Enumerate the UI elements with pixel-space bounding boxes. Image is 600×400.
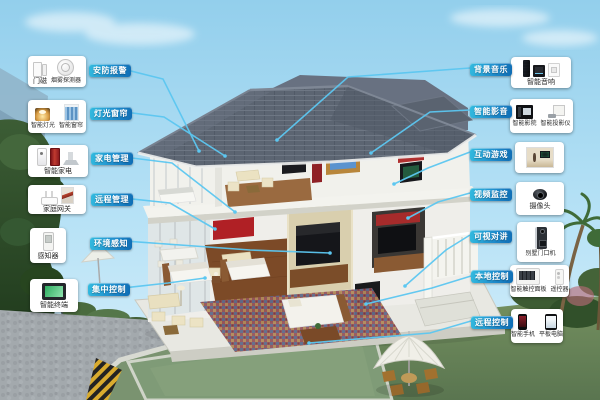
device-box-panel: 智能触控面板 遥控器 xyxy=(510,265,569,297)
device-box-lighting: 智能灯光 智能窗帘 xyxy=(28,100,86,133)
tablet-icon xyxy=(545,314,557,330)
device-label: 智能家电 xyxy=(44,167,72,175)
label-remote-control: 远程控制 xyxy=(471,316,513,329)
label-video-intercom: 可视对讲 xyxy=(470,230,512,243)
projector-icon xyxy=(548,105,564,119)
device-box-terminal: 智能终端 xyxy=(30,279,78,312)
device-box-gateway: 家庭网关 xyxy=(28,185,86,214)
label-local-control: 本地控制 xyxy=(471,270,513,283)
range-hood-icon xyxy=(63,152,79,166)
device-box-security: 门磁 烟雾探测器 xyxy=(28,56,86,87)
home-theater-icon xyxy=(516,105,533,119)
sensor-icon xyxy=(43,232,54,251)
door-magnet-icon xyxy=(33,61,46,76)
device-label: 智能音响 xyxy=(527,78,555,86)
device-label: 摄像头 xyxy=(530,202,551,210)
smart-light-icon xyxy=(35,108,50,121)
device-box-camera: 摄像头 xyxy=(516,182,564,215)
device-box-doorstation: 别墅门口机 xyxy=(517,222,564,262)
device-label: 智能窗帘 xyxy=(59,122,83,130)
door-station-icon xyxy=(535,227,547,249)
label-video-surveillance: 视频监控 xyxy=(470,188,512,201)
label-lighting-curtain: 灯光窗帘 xyxy=(90,107,132,120)
camera-icon xyxy=(532,188,548,201)
device-label: 平板电脑 xyxy=(539,331,563,339)
device-label: 门磁 xyxy=(33,77,47,85)
smart-terminal-icon xyxy=(42,283,66,300)
room-photo-icon xyxy=(61,187,74,204)
label-centralized-control: 集中控制 xyxy=(88,283,130,296)
label-background-music: 背景音乐 xyxy=(470,63,512,76)
touch-panel-icon xyxy=(516,268,540,285)
smart-home-diagram: 门磁 烟雾探测器 安防报警 智能灯光 智能窗帘 灯光窗帘 智能家电 家电管理 家… xyxy=(0,0,600,400)
device-label: 烟雾探测器 xyxy=(51,77,81,85)
router-icon xyxy=(41,191,58,204)
game-room-photo-icon xyxy=(526,147,554,168)
device-label: 智能手机 xyxy=(511,331,535,339)
water-heater-icon xyxy=(37,148,47,166)
device-box-cinema: 智能影院 智能投影仪 xyxy=(510,99,573,133)
remote-icon xyxy=(555,269,564,285)
device-label: 遥控器 xyxy=(551,286,569,294)
smoke-detector-icon xyxy=(57,59,74,76)
device-box-sensor: 感知器 xyxy=(30,228,66,263)
device-label: 别墅门口机 xyxy=(525,250,555,258)
device-label: 智能触控面板 xyxy=(510,286,546,294)
label-smart-av: 智能影音 xyxy=(470,105,512,118)
wine-cooler-icon xyxy=(50,148,60,166)
device-box-appliances: 智能家电 xyxy=(28,145,88,177)
device-label: 感知器 xyxy=(38,252,59,260)
label-environment-sensing: 环境感知 xyxy=(90,237,132,250)
device-box-audio: 智能音响 xyxy=(511,57,571,88)
device-label: 智能投影仪 xyxy=(541,120,571,128)
audio-box-icon xyxy=(533,65,545,77)
device-box-mobile: 智能手机 平板电脑 xyxy=(511,309,563,343)
smart-curtain-icon xyxy=(64,104,79,121)
label-interactive-games: 互动游戏 xyxy=(470,148,512,161)
smartphone-icon xyxy=(518,314,527,330)
device-label: 智能终端 xyxy=(40,301,68,309)
wall-plate-icon xyxy=(548,63,560,77)
label-appliance-management: 家电管理 xyxy=(91,152,133,165)
label-security-alarm: 安防报警 xyxy=(89,64,131,77)
device-label: 智能灯光 xyxy=(31,122,55,130)
device-label: 智能影院 xyxy=(512,120,536,128)
device-box-games xyxy=(515,142,564,173)
label-remote-management: 远程管理 xyxy=(91,193,133,206)
column-speaker-icon xyxy=(523,60,530,77)
device-label: 家庭网关 xyxy=(43,205,71,213)
